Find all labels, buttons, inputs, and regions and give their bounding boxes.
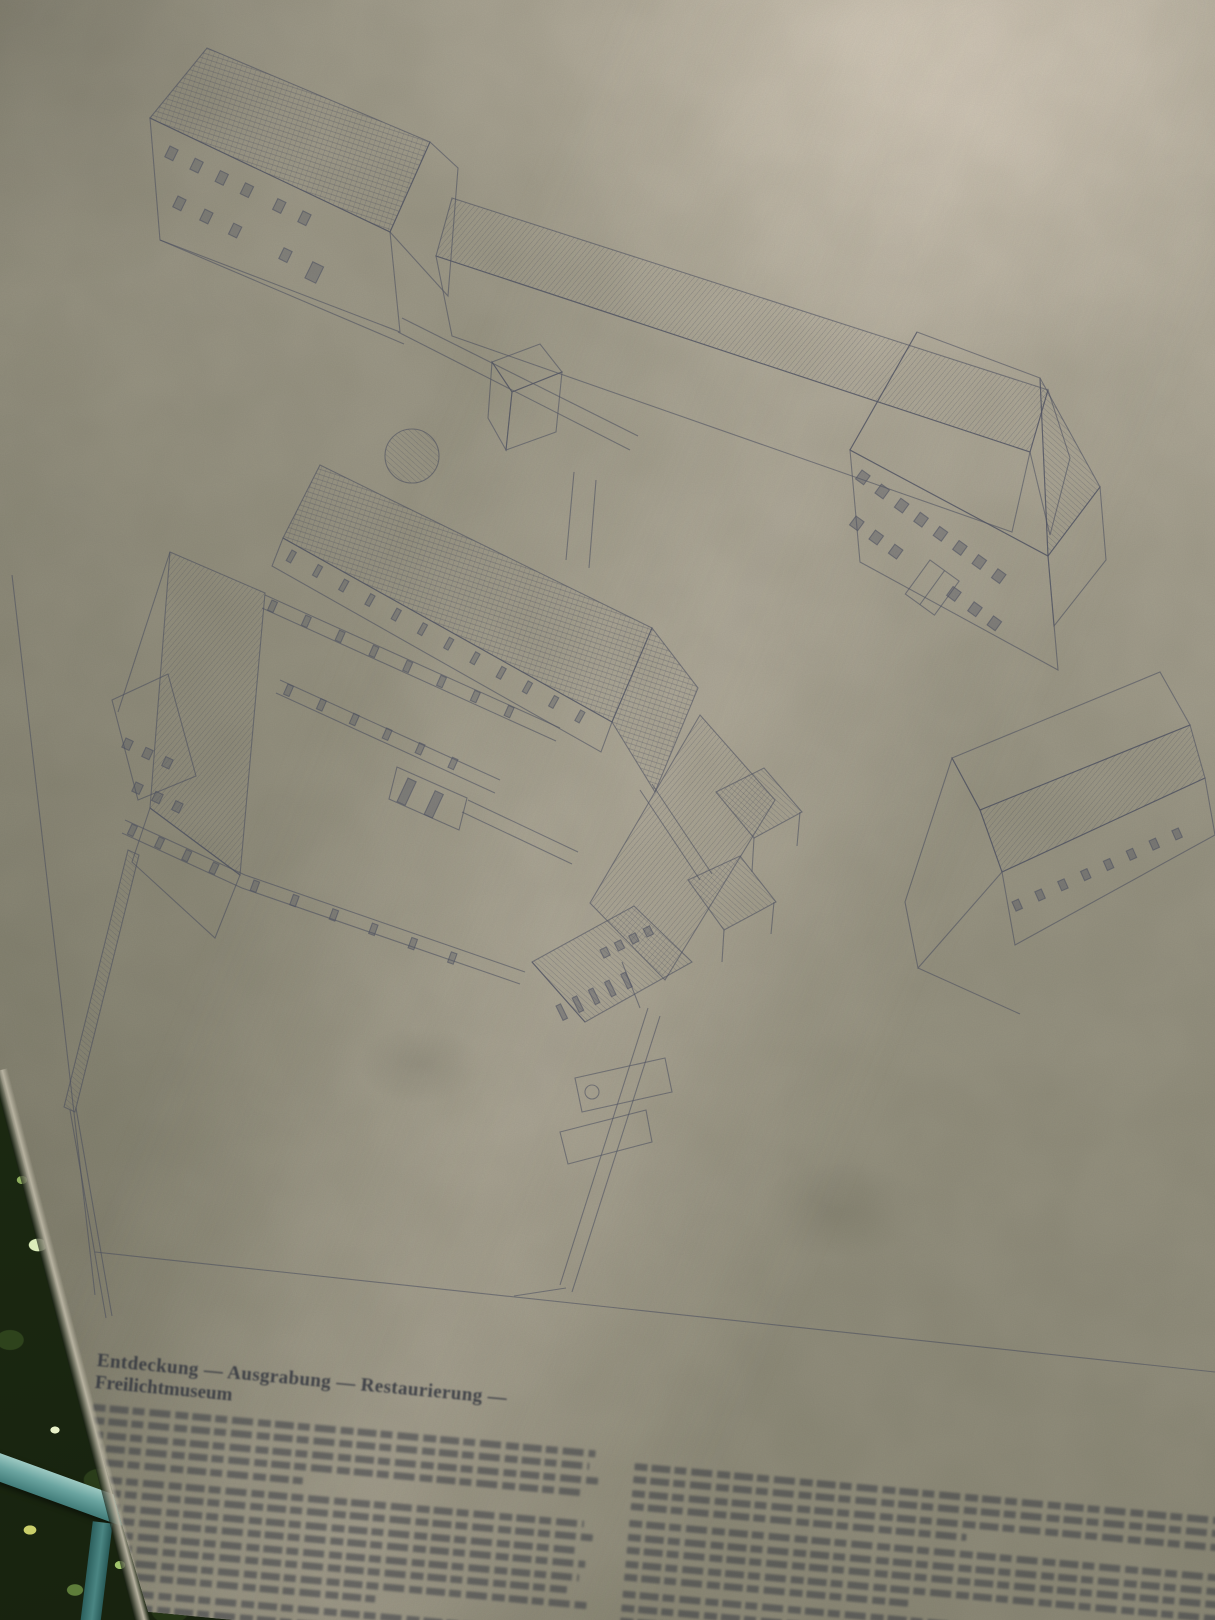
barn-southeast	[905, 672, 1215, 1014]
west-wing	[112, 552, 265, 938]
text-column-right	[610, 1456, 1215, 1620]
trackway	[64, 850, 139, 1318]
text-column-left: Entdeckung — Ausgrabung — Restaurierung …	[69, 1350, 611, 1620]
photo-of-information-sign: Entdeckung — Ausgrabung — Restaurierung …	[0, 0, 1215, 1620]
villa-complex-line-drawing	[0, 0, 1215, 1400]
left-column-body	[70, 1404, 606, 1620]
main-hall-with-apse	[272, 429, 698, 792]
